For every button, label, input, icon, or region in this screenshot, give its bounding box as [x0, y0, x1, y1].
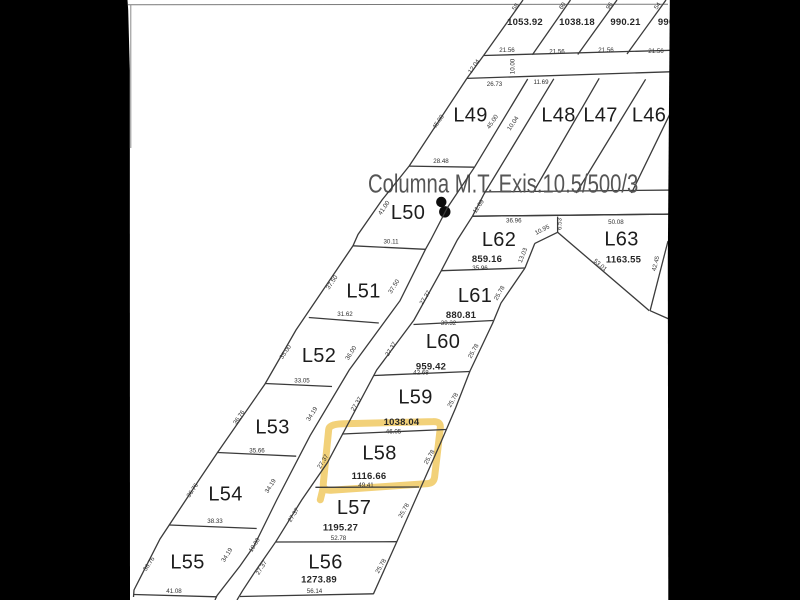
svg-text:11.69: 11.69 [533, 79, 549, 86]
svg-text:50.08: 50.08 [608, 219, 624, 226]
svg-text:28.48: 28.48 [433, 158, 449, 165]
svg-text:L59: L59 [398, 387, 432, 409]
svg-text:L48: L48 [541, 105, 575, 127]
svg-text:42.68: 42.68 [413, 370, 429, 377]
svg-text:35.96: 35.96 [472, 265, 488, 272]
svg-text:10.00: 10.00 [510, 58, 517, 74]
svg-text:L50: L50 [391, 202, 425, 224]
svg-text:21.56: 21.56 [648, 48, 664, 55]
svg-text:L62: L62 [482, 229, 516, 251]
svg-text:6.53: 6.53 [557, 217, 564, 230]
svg-text:L56: L56 [308, 552, 342, 574]
svg-text:39.32: 39.32 [441, 320, 457, 327]
svg-text:Columna M.T. Exis.10.5/500/3: Columna M.T. Exis.10.5/500/3 [368, 169, 638, 198]
svg-text:L49: L49 [453, 105, 487, 127]
svg-text:35.66: 35.66 [249, 447, 265, 454]
svg-text:L63: L63 [604, 229, 638, 251]
svg-text:1163.55: 1163.55 [606, 255, 642, 266]
svg-text:L53: L53 [255, 417, 289, 439]
svg-text:L51: L51 [346, 281, 380, 303]
svg-text:30.11: 30.11 [383, 239, 399, 246]
svg-text:33.05: 33.05 [294, 377, 310, 384]
svg-text:L61: L61 [458, 285, 492, 307]
svg-text:L46: L46 [632, 105, 666, 127]
svg-text:52.78: 52.78 [331, 535, 347, 542]
svg-text:49.41: 49.41 [358, 482, 374, 489]
svg-text:31.62: 31.62 [337, 311, 353, 318]
svg-text:56.14: 56.14 [307, 588, 323, 595]
svg-text:46.05: 46.05 [386, 428, 402, 435]
svg-text:1116.66: 1116.66 [352, 471, 387, 482]
svg-text:L52: L52 [302, 345, 336, 367]
svg-text:L60: L60 [426, 331, 460, 353]
svg-text:990.21: 990.21 [610, 17, 641, 28]
svg-text:26.73: 26.73 [487, 81, 503, 88]
svg-text:1273.89: 1273.89 [301, 575, 337, 586]
svg-text:21.56: 21.56 [598, 47, 614, 54]
svg-text:21.56: 21.56 [499, 47, 515, 54]
svg-text:L54: L54 [208, 484, 242, 506]
svg-text:38.33: 38.33 [207, 518, 223, 525]
svg-text:L47: L47 [583, 105, 617, 127]
svg-text:859.16: 859.16 [472, 254, 502, 265]
svg-text:41.08: 41.08 [166, 588, 182, 595]
svg-text:1195.27: 1195.27 [323, 523, 358, 534]
svg-text:1038.18: 1038.18 [559, 17, 595, 28]
svg-text:1038.04: 1038.04 [384, 417, 420, 428]
svg-text:36.96: 36.96 [506, 218, 522, 225]
svg-text:L58: L58 [362, 443, 396, 465]
svg-text:1053.92: 1053.92 [507, 17, 543, 28]
svg-text:21.56: 21.56 [549, 49, 565, 56]
svg-text:L57: L57 [337, 497, 371, 519]
svg-text:L55: L55 [170, 552, 204, 574]
